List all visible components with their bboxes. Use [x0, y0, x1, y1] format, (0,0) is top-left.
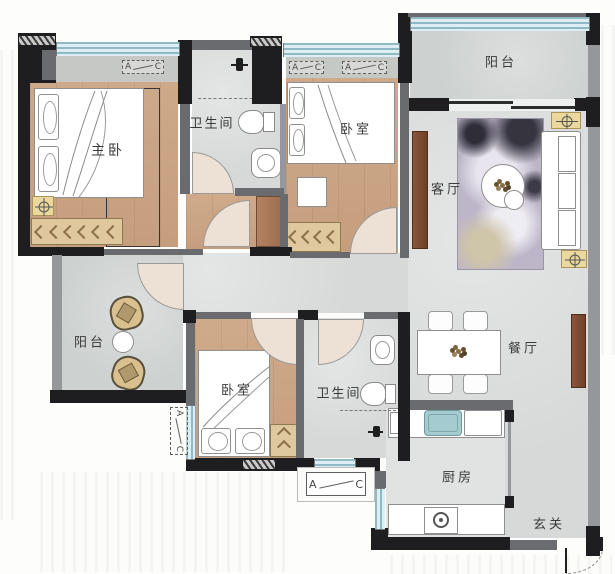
ac-letter-a: A — [309, 478, 317, 491]
wall-segment — [18, 33, 30, 255]
background-texture — [40, 472, 290, 572]
ac-letter-c: C — [315, 63, 321, 73]
window — [375, 488, 385, 530]
room-label-bedroom-top: 卧室 — [340, 119, 372, 138]
wall-segment — [52, 255, 62, 392]
toilet — [238, 110, 264, 134]
shower-divider — [340, 410, 396, 411]
sliding-door-panel — [511, 106, 575, 109]
master-wardrobe — [31, 218, 123, 245]
dining-chair — [428, 311, 453, 331]
wardrobe — [270, 424, 297, 457]
wall-segment — [398, 312, 410, 461]
sideboard — [571, 314, 586, 388]
toilet-tank — [263, 112, 275, 132]
desk — [297, 177, 327, 207]
ac-letter-c: C — [378, 63, 384, 73]
wall-segment — [586, 97, 600, 127]
kitchen-cabinet — [464, 410, 502, 436]
wall-segment — [364, 312, 398, 319]
dining-chair — [463, 374, 488, 394]
wall-segment — [290, 252, 350, 258]
sliding-door-kitchen — [508, 422, 511, 496]
wall-segment — [590, 537, 603, 551]
pillow — [38, 146, 59, 192]
ac-mark: AC — [289, 61, 324, 74]
wall-segment — [104, 249, 203, 255]
structural-column — [42, 50, 56, 80]
bedside-table — [32, 196, 54, 216]
window — [283, 43, 400, 57]
room-label-balcony-top: 阳台 — [485, 52, 517, 71]
ac-letter-a: A — [125, 62, 131, 72]
floor-plan: 主卧 卫生间 卧室 阳台 — [0, 0, 615, 574]
stove-burner-dot — [439, 518, 443, 522]
ac-letter-c: C — [174, 446, 184, 452]
ac-mark-vertical: AC — [170, 407, 188, 455]
sofa-cushion — [558, 173, 576, 209]
dining-chair — [428, 374, 453, 394]
toilet — [360, 382, 386, 406]
wall-segment — [178, 40, 192, 104]
pillow — [289, 87, 305, 119]
plant — [456, 349, 461, 354]
wall-segment — [196, 312, 251, 319]
kitchen-sink — [424, 410, 462, 436]
wall-hatch — [243, 460, 275, 469]
plant — [500, 183, 505, 188]
room-label-living-room: 客厅 — [431, 179, 463, 198]
sofa-cushion — [558, 136, 576, 172]
side-table — [561, 250, 587, 268]
washbasin — [370, 335, 395, 365]
background-texture — [0, 50, 16, 520]
ac-letter-a: A — [345, 63, 351, 73]
sliding-door-panel — [449, 101, 513, 104]
pillow — [235, 428, 265, 454]
ac-letter-a: A — [292, 63, 298, 73]
room-label-dining-room: 餐厅 — [508, 338, 540, 357]
wall-segment — [192, 40, 252, 50]
compass-icon — [33, 197, 55, 217]
wall-segment — [250, 247, 292, 256]
room-label-balcony-left: 阳台 — [74, 332, 106, 351]
wall-segment — [280, 104, 286, 194]
ac-letter-c: C — [155, 62, 161, 72]
background-texture — [601, 25, 615, 355]
washbasin — [251, 148, 281, 178]
wall-segment — [409, 98, 449, 111]
wall-segment — [510, 540, 557, 550]
wall-segment — [252, 47, 282, 104]
wall-segment — [235, 188, 284, 196]
compass-icon — [552, 113, 582, 130]
toilet-tank — [385, 384, 396, 404]
wall-segment — [50, 390, 195, 403]
room-label-bathroom-top: 卫生间 — [189, 113, 234, 132]
pillow — [201, 428, 231, 454]
room-label-kitchen: 厨房 — [442, 467, 474, 486]
pillow — [289, 124, 305, 156]
wall-segment — [186, 323, 195, 405]
ac-letter-a: A — [174, 410, 184, 416]
pillow — [38, 94, 59, 140]
window — [410, 17, 590, 31]
room-label-master-bedroom: 主卧 — [91, 140, 125, 160]
shower-arm-icon — [368, 431, 383, 433]
wall-segment — [280, 194, 288, 254]
ac-mark: AC — [342, 61, 387, 74]
dining-chair — [463, 311, 488, 331]
coffee-table-small — [504, 190, 524, 210]
ac-mark: AC — [306, 472, 366, 496]
room-label-foyer: 玄关 — [533, 514, 565, 533]
window — [56, 42, 180, 56]
wall-segment — [588, 13, 600, 545]
balcony-table — [112, 331, 134, 353]
wall-segment — [400, 83, 409, 258]
wall-segment — [505, 410, 514, 422]
wall-segment — [410, 400, 513, 410]
tv-console — [412, 131, 428, 249]
wall-segment — [505, 496, 514, 508]
shower-arm-icon — [231, 64, 248, 66]
wardrobe — [287, 222, 341, 252]
room-label-bathroom-bottom: 卫生间 — [316, 383, 361, 402]
sofa-cushion — [558, 210, 576, 246]
compass-icon — [562, 251, 588, 269]
wall-hatch — [19, 36, 55, 45]
wall-segment — [183, 310, 196, 323]
room-label-bedroom-bottom: 卧室 — [221, 380, 253, 399]
side-table — [551, 112, 581, 129]
wall-segment — [296, 319, 304, 458]
wall-segment — [378, 537, 510, 550]
ac-letter-c: C — [355, 478, 363, 491]
ac-mark: AC — [122, 60, 164, 74]
wall-hatch — [251, 38, 281, 46]
